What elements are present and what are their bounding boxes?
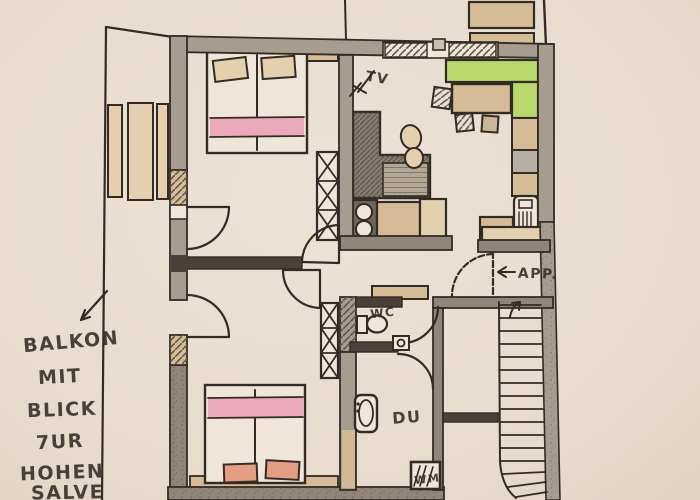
note-line: BLICK (27, 398, 98, 422)
cabinet (512, 173, 538, 196)
bedroom-divider-wall (180, 257, 302, 269)
bathtub-icon (355, 395, 377, 432)
chair (432, 87, 453, 109)
note-line: 7UR (36, 430, 85, 454)
balcony (102, 27, 173, 500)
tv-corner: TV (350, 69, 390, 96)
sofa-side (512, 82, 538, 118)
outer-wall-left (170, 207, 187, 300)
bath-door-swing (398, 354, 433, 389)
kitchen-column (512, 118, 538, 236)
stair-treads (499, 305, 547, 497)
balcony-door-2-swing (187, 295, 229, 337)
stool (455, 113, 474, 132)
wc-sink-icon (393, 336, 409, 350)
living-room-west-wall (339, 55, 353, 248)
upper-wall-line (345, 0, 346, 40)
wardrobe-2-icon (321, 303, 338, 378)
balcony-slat (108, 105, 122, 197)
balcony-slat (157, 104, 168, 199)
bedroom-2 (190, 303, 338, 489)
stove-icon (351, 200, 377, 240)
floor-plan-drawing: WM TV APP. WC DU BALKON MIT BLICK (0, 0, 700, 500)
door-post (170, 205, 187, 219)
hall-south-wall (433, 297, 553, 308)
balcony-slat (128, 103, 153, 200)
bedroom-2-door-swing (283, 270, 320, 308)
apartment-label: APP. (518, 266, 559, 283)
bedroom-1 (207, 48, 338, 240)
washing-machine-icon: WM (411, 462, 441, 489)
note-line: SALVE (31, 481, 104, 500)
living-south-wall (478, 240, 550, 252)
apartment-entry-label: APP. (498, 266, 558, 283)
tv-label: TV (364, 69, 390, 89)
stair-winders (503, 472, 547, 497)
cabinet (512, 150, 538, 173)
pillow (261, 56, 295, 79)
note-line: BALKON (22, 327, 120, 357)
dining-table (452, 84, 511, 113)
outer-wall-left (170, 36, 187, 172)
sofa-top (446, 60, 538, 82)
wc-bath-divider (350, 342, 398, 352)
upper-wall-line (544, 0, 546, 46)
pillow (224, 463, 258, 482)
balcony-outline-top (106, 27, 173, 37)
pillow (213, 57, 248, 82)
balcony-note: BALKON MIT BLICK 7UR HOHEN SALVE (20, 291, 120, 500)
note-line: MIT (38, 365, 83, 389)
balcony-outline-left (102, 27, 106, 500)
outer-wall-right (538, 44, 554, 222)
photographed-floor-plan: WM TV APP. WC DU BALKON MIT BLICK (0, 0, 700, 500)
counter (420, 199, 446, 237)
double-bed-1 (207, 50, 307, 153)
bed-blanket (208, 398, 303, 417)
upper-sideboard (469, 2, 534, 28)
wall-junction (169, 255, 187, 272)
window (449, 43, 496, 57)
living-room (351, 60, 538, 243)
wc-label: WC (370, 305, 396, 322)
staircase (499, 302, 547, 498)
cabinet (512, 118, 538, 150)
shower-label: DU (392, 407, 423, 428)
window (385, 43, 427, 57)
plate (405, 148, 423, 168)
double-bed-2 (205, 385, 305, 483)
bed-blanket (210, 118, 304, 136)
counter (377, 202, 420, 237)
plate (398, 123, 423, 151)
window-post (433, 39, 445, 50)
washer-label: WM (414, 471, 441, 487)
bath-west-wall-tint (342, 430, 355, 488)
living-south-wall (340, 236, 452, 250)
pillow (266, 460, 300, 480)
left-arrow-icon (498, 267, 515, 277)
balcony-door-1-swing (187, 207, 229, 249)
stool (481, 115, 498, 132)
understair-wall (443, 413, 498, 422)
apartment-entry-door-swing (452, 252, 493, 297)
